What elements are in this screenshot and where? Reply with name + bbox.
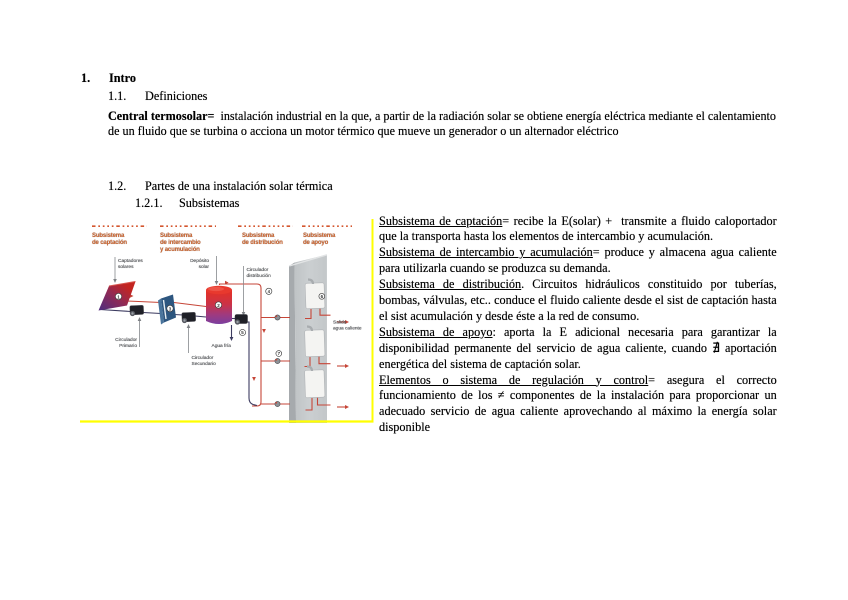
svg-text:Circulador: Circulador (247, 267, 269, 273)
svg-text:Subsistema: Subsistema (303, 233, 336, 239)
svg-text:de apoyo: de apoyo (303, 240, 329, 246)
svg-text:de distribución: de distribución (242, 240, 283, 246)
svg-text:de captación: de captación (92, 240, 127, 246)
svg-text:Subsistema: Subsistema (242, 233, 275, 239)
svg-text:Circulador: Circulador (115, 337, 137, 343)
svg-text:de intercambio: de intercambio (160, 240, 201, 246)
svg-text:Subsistema: Subsistema (92, 233, 125, 239)
svg-text:Primario: Primario (119, 343, 137, 349)
svg-text:Agua fría: Agua fría (212, 343, 232, 349)
svg-text:Circulador: Circulador (192, 355, 214, 361)
svg-text:distribución: distribución (247, 273, 272, 279)
svg-text:Secundario: Secundario (192, 361, 217, 367)
svg-text:Captadores: Captadores (118, 258, 143, 264)
svg-text:Salida: Salida (333, 320, 347, 326)
svg-text:solares: solares (118, 264, 134, 270)
svg-text:Depósito: Depósito (190, 258, 209, 264)
svg-text:agua caliente: agua caliente (333, 326, 362, 332)
svg-text:Subsistema: Subsistema (160, 233, 193, 239)
svg-text:solar: solar (199, 264, 210, 270)
svg-text:y acumulación: y acumulación (160, 247, 200, 253)
